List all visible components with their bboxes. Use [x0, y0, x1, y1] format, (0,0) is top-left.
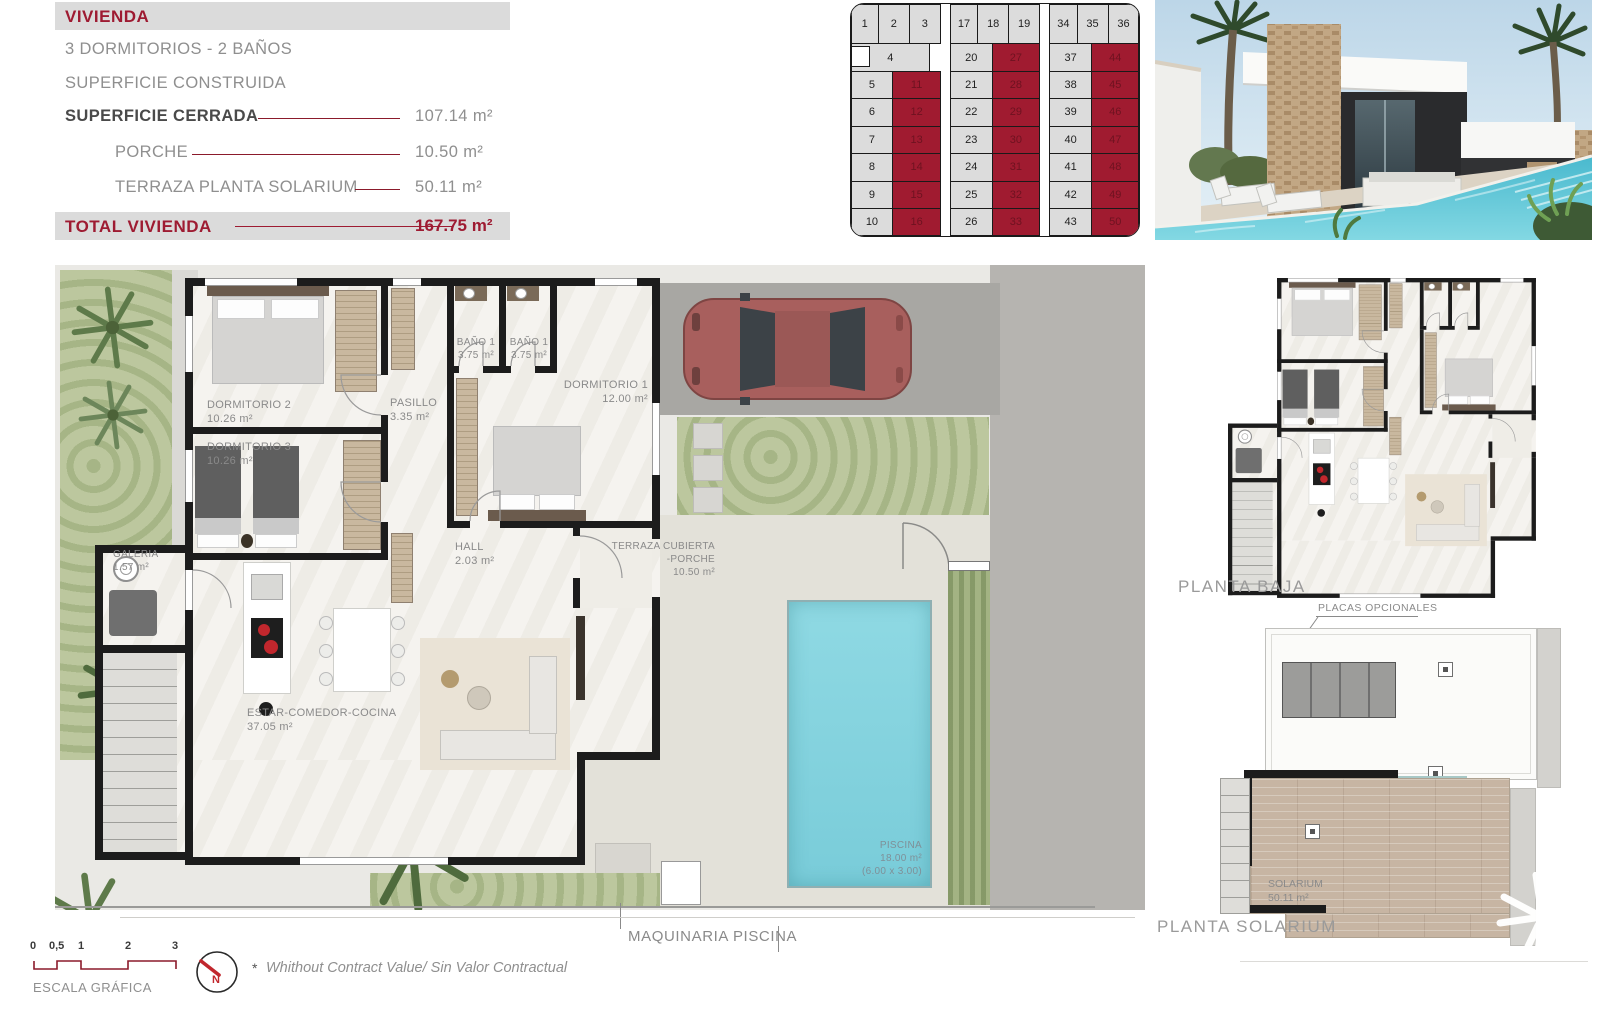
- leader-line: [778, 926, 779, 952]
- panel-title: VIVIENDA: [65, 7, 149, 27]
- plot-block: 3435363744384539464047414842494350: [1050, 4, 1139, 236]
- plot-cell: 41: [1049, 153, 1092, 181]
- skylight: [1305, 824, 1320, 839]
- maquinaria-label: MAQUINARIA PISCINA: [628, 928, 797, 945]
- room-label-dormitorio2: DORMITORIO 210.26 m²: [207, 398, 291, 427]
- closed-surface-value: 107.14 m²: [415, 107, 493, 126]
- house-plan: [1228, 278, 1536, 601]
- plot-cell: 19: [1008, 4, 1040, 45]
- scale-tick-1: 1: [78, 940, 84, 952]
- plot-cell: 42: [1049, 181, 1092, 209]
- plot-cell-highlighted: 48: [1091, 153, 1139, 181]
- divider-line: [1240, 961, 1588, 962]
- leader-rule: [258, 118, 400, 119]
- scale-tick-2: 2: [125, 940, 131, 952]
- palm-tree-icon: [55, 865, 145, 910]
- door-swing-arcs: [1228, 278, 1536, 601]
- leader-rule: [355, 189, 400, 190]
- plot-cell: 5: [851, 71, 894, 99]
- plot-cell: 20: [950, 43, 993, 71]
- plot-cell: 18: [977, 4, 1009, 45]
- title-bar: VIVIENDA: [55, 2, 510, 30]
- gate: [948, 561, 990, 571]
- plot-cell: 22: [950, 98, 993, 126]
- scale-tick-05: 0,5: [49, 940, 64, 952]
- plot-cell-highlighted: 45: [1091, 71, 1139, 99]
- street: [990, 265, 1145, 910]
- plot-cell-highlighted: 31: [992, 153, 1040, 181]
- plot-block: 1718192027212822292330243125322633: [950, 4, 1039, 236]
- porch-label: PORCHE: [115, 143, 188, 162]
- stepping-stone: [693, 455, 723, 481]
- room-label-solarium: SOLARIUM50.11 m²: [1268, 878, 1323, 905]
- plot-cell-highlighted: 33: [992, 208, 1040, 236]
- bedrooms-baths-line: 3 DORMITORIOS - 2 BAÑOS: [65, 40, 292, 59]
- total-label: TOTAL VIVIENDA: [65, 217, 212, 237]
- room-label-galeria: GALERIA1.57 m²: [113, 548, 158, 574]
- plot-cell-highlighted: 49: [1091, 181, 1139, 209]
- pool-machinery-box: [661, 861, 701, 905]
- plot-cell: 40: [1049, 126, 1092, 154]
- car-top-view: [680, 291, 915, 407]
- plot-cell-highlighted: 44: [1091, 43, 1139, 71]
- plot-block: 12345116127138149151016: [851, 4, 940, 236]
- plot-cell: 25: [950, 181, 993, 209]
- room-label-estar: ESTAR-COMEDOR-COCINA37.05 m²: [247, 706, 396, 735]
- roof-parapet: [1537, 628, 1561, 788]
- plot-cell: 3: [909, 4, 941, 45]
- plot-cell: 35: [1077, 4, 1109, 45]
- plot-cell-highlighted: 29: [992, 98, 1040, 126]
- planta-baja-label: PLANTA BAJA: [1178, 577, 1306, 597]
- disclaimer-text: Whithout Contract Value/ Sin Valor Contr…: [266, 960, 567, 976]
- plot-cell-highlighted: 32: [992, 181, 1040, 209]
- built-surface-line: SUPERFICIE CONSTRUIDA: [65, 74, 286, 93]
- wall: [1248, 770, 1398, 778]
- garden-strip: [677, 417, 989, 517]
- leader-line: [620, 903, 621, 929]
- stepping-stone: [693, 487, 723, 513]
- plot-cell: 7: [851, 126, 894, 154]
- plot-cell-highlighted: 28: [992, 71, 1040, 99]
- room-label-pasillo: PASILLO3.35 m²: [390, 396, 437, 425]
- plot-cell-highlighted: 14: [892, 153, 940, 181]
- room-label-dormitorio3: DORMITORIO 310.26 m²: [207, 440, 291, 469]
- plot-entrance-marker: [851, 46, 870, 67]
- solar-panels: [1282, 662, 1396, 718]
- plot-cell: 2: [878, 4, 910, 45]
- plot-cell: 24: [950, 153, 993, 181]
- pool-label: PISCINA 18.00 m² (6.00 x 3.00): [862, 839, 922, 878]
- plot-cell-highlighted: 13: [892, 126, 940, 154]
- room-label-bano1b: BAÑO 13.75 m²: [503, 336, 555, 362]
- gate-swing-arc: [900, 520, 952, 576]
- solarium-terrace-value: 50.11 m²: [415, 178, 482, 197]
- leader-line: [1316, 616, 1418, 617]
- plot-cell-highlighted: 16: [892, 208, 940, 236]
- plot-cell: 43: [1049, 208, 1092, 236]
- plot-cell-highlighted: 46: [1091, 98, 1139, 126]
- total-value: 167.75 m²: [415, 216, 493, 236]
- plot-cell: 8: [851, 153, 894, 181]
- plot-cell: 39: [1049, 98, 1092, 126]
- scale-label: ESCALA GRÁFICA: [33, 980, 152, 995]
- sidewalk-line: [120, 917, 1135, 918]
- plot-cell: 36: [1108, 4, 1140, 45]
- planta-baja-mini-plan: [1228, 278, 1536, 601]
- room-label-terraza: TERRAZA CUBIERTA-PORCHE10.50 m²: [593, 540, 715, 579]
- sidewalk-line: [55, 906, 1095, 908]
- solarium-terrace-label: TERRAZA PLANTA SOLARIUM: [115, 178, 358, 197]
- plot-cell: 26: [950, 208, 993, 236]
- plot-cell-highlighted: 27: [992, 43, 1040, 71]
- skylight: [1438, 662, 1453, 677]
- plot-cell-highlighted: 30: [992, 126, 1040, 154]
- main-floor-plan: PISCINA 18.00 m² (6.00 x 3.00): [55, 265, 1145, 910]
- plot-cell: 23: [950, 126, 993, 154]
- room-label-dormitorio1: DORMITORIO 112.00 m²: [520, 378, 648, 407]
- plot-cell-highlighted: 50: [1091, 208, 1139, 236]
- compass-north-label: N: [212, 974, 220, 986]
- wall: [1244, 905, 1326, 913]
- hedge: [948, 570, 990, 905]
- placas-opcionales-label: PLACAS OPCIONALES: [1318, 602, 1437, 614]
- palm-watermark-icon: [1488, 872, 1596, 972]
- plot-cell: 21: [950, 71, 993, 99]
- plot-cell: 1: [851, 4, 879, 45]
- room-label-bano1: BAÑO 13.75 m²: [450, 336, 502, 362]
- door-swing-arcs: [95, 278, 660, 870]
- plot-cell-highlighted: 15: [892, 181, 940, 209]
- brochure-page: { "info_panel": { "title": "VIVIENDA", "…: [0, 0, 1600, 1024]
- plot-cell-highlighted: 47: [1091, 126, 1139, 154]
- villa-render-photo: [1155, 0, 1592, 240]
- plot-cell: 17: [950, 4, 978, 45]
- plot-cell: 10: [851, 208, 894, 236]
- plot-cell: 6: [851, 98, 894, 126]
- scale-bar: [33, 955, 183, 971]
- stepping-stone: [693, 423, 723, 449]
- plot-cell: 37: [1049, 43, 1092, 71]
- plot-cell: 38: [1049, 71, 1092, 99]
- plot-cell: 9: [851, 181, 894, 209]
- planta-solarium-label: PLANTA SOLARIUM: [1157, 917, 1337, 937]
- leader-rule: [192, 154, 400, 155]
- pool: PISCINA 18.00 m² (6.00 x 3.00): [787, 600, 932, 888]
- compass-icon: N: [193, 948, 241, 996]
- scale-tick-0: 0: [30, 940, 36, 952]
- closed-surface-label: SUPERFICIE CERRADA: [65, 107, 258, 126]
- stairs: [1220, 778, 1250, 914]
- porch-value: 10.50 m²: [415, 143, 483, 162]
- room-label-hall: HALL2.03 m²: [455, 540, 494, 569]
- disclaimer-asterisk: *: [252, 960, 257, 976]
- plot-cell-highlighted: 12: [892, 98, 940, 126]
- site-plot-grid: 1234511612713814915101617181920272128222…: [850, 3, 1140, 237]
- plot-cell: 34: [1049, 4, 1077, 45]
- plot-cell-highlighted: 11: [892, 71, 940, 99]
- scale-tick-3: 3: [172, 940, 178, 952]
- total-bar: TOTAL VIVIENDA 167.75 m²: [55, 212, 510, 240]
- villa-photo-illustration: [1155, 0, 1592, 240]
- house-plan: DORMITORIO 210.26 m² DORMITORIO 310.26 m…: [95, 278, 660, 870]
